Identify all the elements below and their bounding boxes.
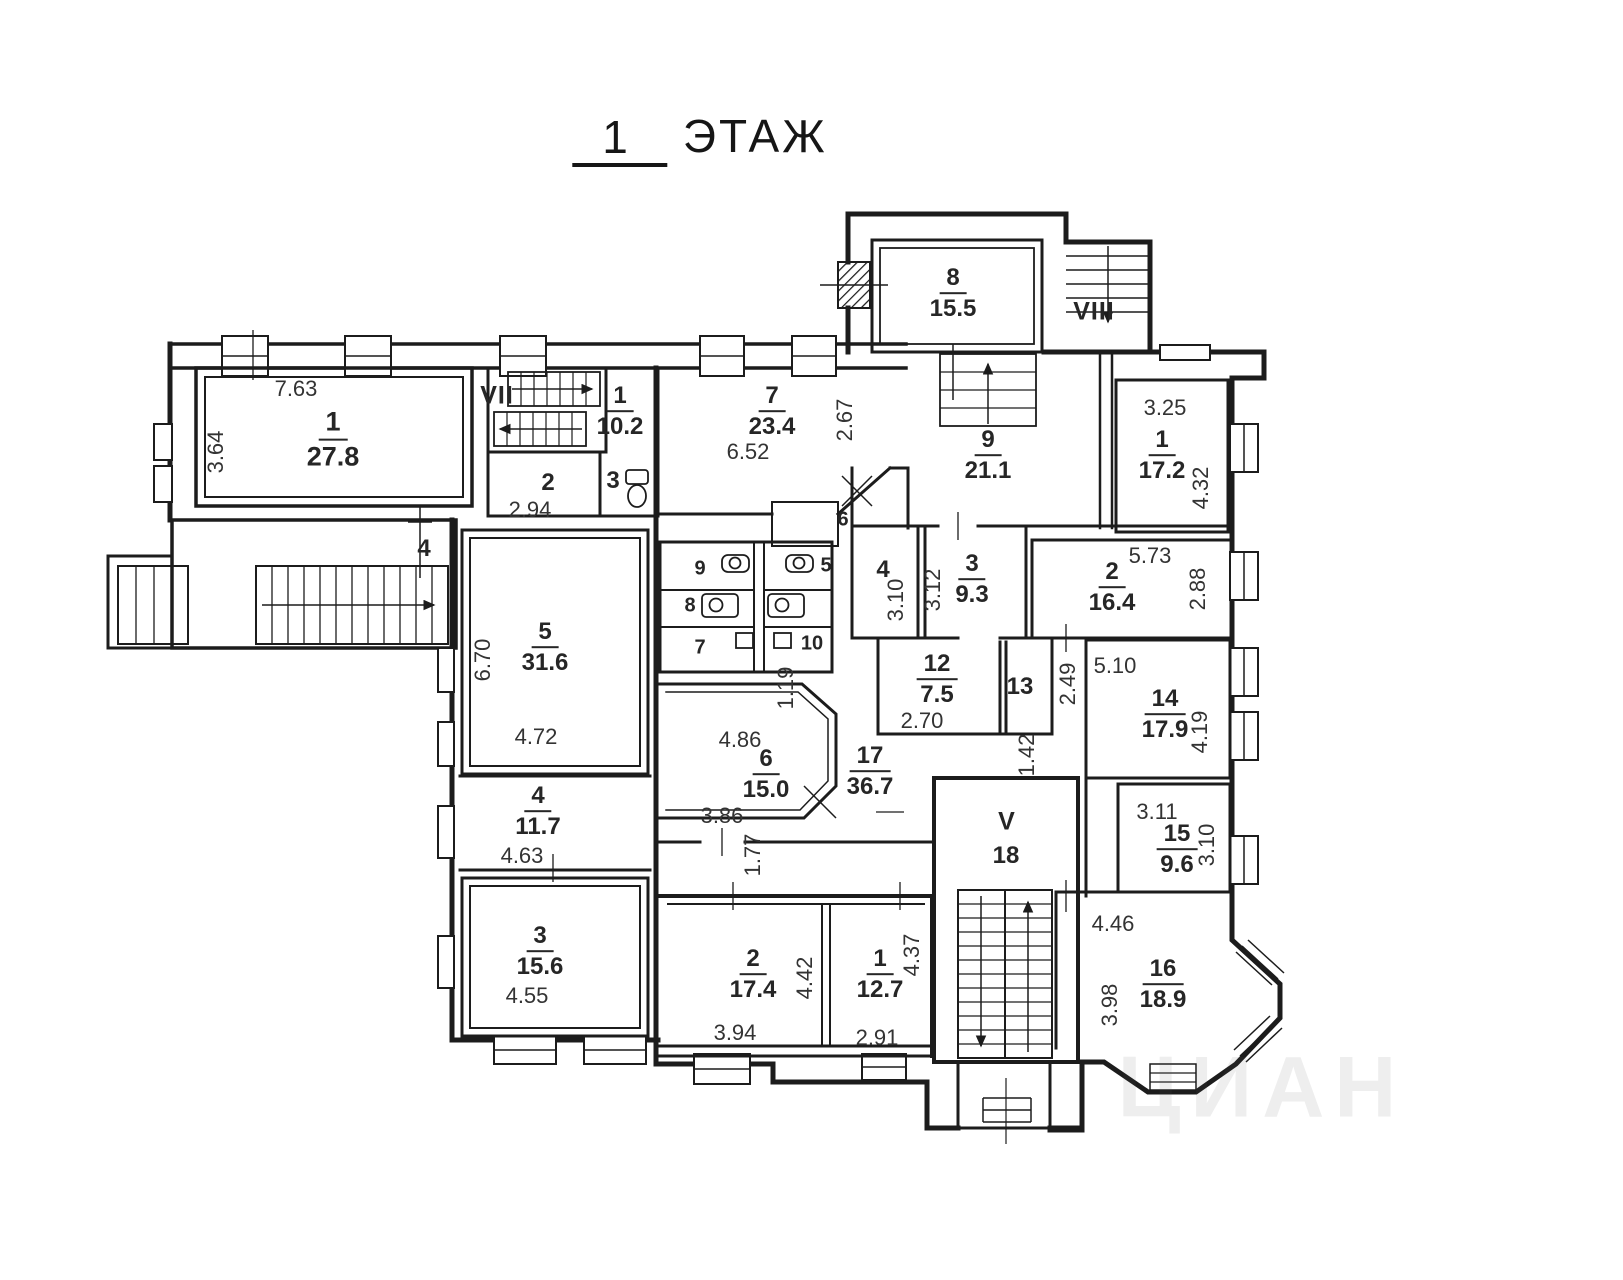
dim-r4-depth: 3.10 xyxy=(883,579,909,622)
room-label-m6: 6 15.0 xyxy=(743,745,790,805)
room-area: 16.4 xyxy=(1089,589,1136,618)
plan-title: 1 ЭТАЖ xyxy=(572,109,827,167)
room-area: 10.2 xyxy=(597,413,644,442)
room-label-l3wc-number: 3 xyxy=(606,467,619,495)
room-number: 1 xyxy=(318,407,347,441)
room-number: 4 xyxy=(524,782,551,812)
dim-m7-width: 6.52 xyxy=(727,439,770,465)
room-label-l5: 5 31.6 xyxy=(522,618,569,678)
dim-corridor-width: 5.10 xyxy=(1094,653,1137,679)
room-number: 17 xyxy=(850,742,891,772)
room-label-l2-area: 2.94 xyxy=(509,497,552,523)
dim-m12-width: 2.70 xyxy=(901,708,944,734)
dim-r1-depth: 4.32 xyxy=(1188,467,1214,510)
stairs-main-entry xyxy=(118,566,448,644)
dim-l1-depth: 3.64 xyxy=(203,431,229,474)
stairs-v xyxy=(958,890,1052,1144)
room-label-b1: 1 12.7 xyxy=(857,945,904,1005)
room-number: 2 xyxy=(739,945,766,975)
room-area: 9.3 xyxy=(955,581,988,610)
dim-l4-width: 4.63 xyxy=(501,843,544,869)
dim-b2-width: 3.94 xyxy=(714,1020,757,1046)
room-number: 3 xyxy=(958,550,985,580)
dim-b1-width: 2.91 xyxy=(856,1025,899,1051)
room-label-r9: 9 21.1 xyxy=(965,426,1012,486)
window-symbols-bottom xyxy=(494,1036,906,1084)
room-area: 15.0 xyxy=(743,776,790,805)
room-label-m13-number: 13 xyxy=(1007,673,1034,701)
room-number: 14 xyxy=(1145,685,1186,715)
room-number: 5 xyxy=(531,618,558,648)
room-number: 1 xyxy=(606,382,633,412)
room-number: 9 xyxy=(974,426,1001,456)
room-number: 2 xyxy=(1098,558,1125,588)
floor-plan-page: 1 ЭТАЖ 1 27.8 1 10.2 7 23.4 8 15.5 9 21.… xyxy=(0,0,1623,1280)
dim-m15-width: 3.11 xyxy=(1136,799,1177,825)
room-area: 17.9 xyxy=(1142,716,1189,745)
room-area: 12.7 xyxy=(857,976,904,1005)
wc-label-7: 7 xyxy=(694,637,705,660)
wc-label-10: 10 xyxy=(801,633,823,656)
dim-r2-depth: 2.88 xyxy=(1185,568,1211,611)
stairwell-v-label: V xyxy=(998,808,1016,837)
room-label-left-1: 1 27.8 xyxy=(307,407,360,474)
dim-r3-depth: 3.12 xyxy=(920,569,946,612)
room-label-l4mark-number: 4 xyxy=(417,535,430,563)
dim-b2-depth: 4.42 xyxy=(792,957,818,1000)
room-label-m12: 12 7.5 xyxy=(917,650,958,710)
room-area: 31.6 xyxy=(522,649,569,678)
dim-l5-width: 4.72 xyxy=(515,724,558,750)
dim-m13-depth: 2.49 xyxy=(1055,663,1081,706)
dim-m6-width: 4.86 xyxy=(719,727,762,753)
room-area: 17.2 xyxy=(1139,457,1186,486)
wc-label-5: 5 xyxy=(820,555,831,578)
room-label-m16: 16 18.9 xyxy=(1140,955,1187,1015)
room-number: 12 xyxy=(917,650,958,680)
wc-label-6: 6 xyxy=(837,509,848,532)
dim-l1-width: 7.63 xyxy=(275,376,318,402)
hatched-pier xyxy=(820,262,888,308)
wc-label-9: 9 xyxy=(694,558,705,581)
room-area: 21.1 xyxy=(965,457,1012,486)
room-number: 3 xyxy=(526,922,553,952)
room-area: 36.7 xyxy=(847,773,894,802)
room-label-m7: 7 23.4 xyxy=(749,382,796,442)
room-number: 7 xyxy=(758,382,785,412)
room-area: 27.8 xyxy=(307,441,360,474)
room-area: 9.6 xyxy=(1160,851,1193,880)
room-number: 1 xyxy=(1148,426,1175,456)
room-label-b2: 2 17.4 xyxy=(730,945,777,1005)
dim-m7-depth: 2.67 xyxy=(832,399,858,442)
window-symbols-top xyxy=(222,336,1210,376)
dim-l5-depth: 6.70 xyxy=(470,639,496,682)
plan-title-word: ЭТАЖ xyxy=(683,109,828,167)
wc-label-8: 8 xyxy=(684,595,695,618)
room-label-l3: 3 15.6 xyxy=(517,922,564,982)
room-label-r8: 8 15.5 xyxy=(930,264,977,324)
stairwell-v-number: 18 xyxy=(993,842,1020,870)
room-label-l4: 4 11.7 xyxy=(515,782,560,842)
dim-r1-width: 3.25 xyxy=(1144,395,1187,421)
dim-corridor-passage: 1.77 xyxy=(740,834,766,877)
dim-l3-width: 4.55 xyxy=(506,983,549,1009)
watermark: ЦИАН xyxy=(1118,1039,1407,1138)
window-symbols-left xyxy=(154,424,454,988)
stairs-room9 xyxy=(940,354,1036,426)
dim-wc-passage: 1.19 xyxy=(773,667,799,710)
dim-m14-depth: 4.19 xyxy=(1187,711,1213,754)
stairwell-viii-label: VIII xyxy=(1073,298,1115,327)
dim-b1-depth: 4.37 xyxy=(899,934,925,977)
room-number: 1 xyxy=(866,945,893,975)
room-area: 11.7 xyxy=(515,813,560,842)
dim-m6-width2: 3.86 xyxy=(701,803,744,829)
room-label-m14: 14 17.9 xyxy=(1142,685,1189,745)
dim-corridor-neck: 1.42 xyxy=(1014,734,1040,777)
room-area: 18.9 xyxy=(1140,986,1187,1015)
room-area: 17.4 xyxy=(730,976,777,1005)
dim-r2-width: 5.73 xyxy=(1129,543,1172,569)
dim-m15-depth: 3.10 xyxy=(1194,824,1220,867)
plan-title-floor-number: 1 xyxy=(572,113,667,167)
room-label-m17: 17 36.7 xyxy=(847,742,894,802)
room-area: 7.5 xyxy=(920,681,953,710)
room-label-r3: 3 9.3 xyxy=(955,550,988,610)
room-label-left-hall: 1 10.2 xyxy=(597,382,644,442)
room-label-l2-number: 2 xyxy=(541,469,554,497)
room-number: 16 xyxy=(1143,955,1184,985)
stairwell-vii-label: VII xyxy=(480,382,514,411)
dim-m16-depth: 3.98 xyxy=(1097,984,1123,1027)
room-area: 15.6 xyxy=(517,953,564,982)
room-area: 15.5 xyxy=(930,295,977,324)
room-label-m15: 15 9.6 xyxy=(1157,820,1198,880)
dim-m16-width: 4.46 xyxy=(1092,911,1135,937)
room-label-r1: 1 17.2 xyxy=(1139,426,1186,486)
room-number: 8 xyxy=(939,264,966,294)
room-area: 23.4 xyxy=(749,413,796,442)
